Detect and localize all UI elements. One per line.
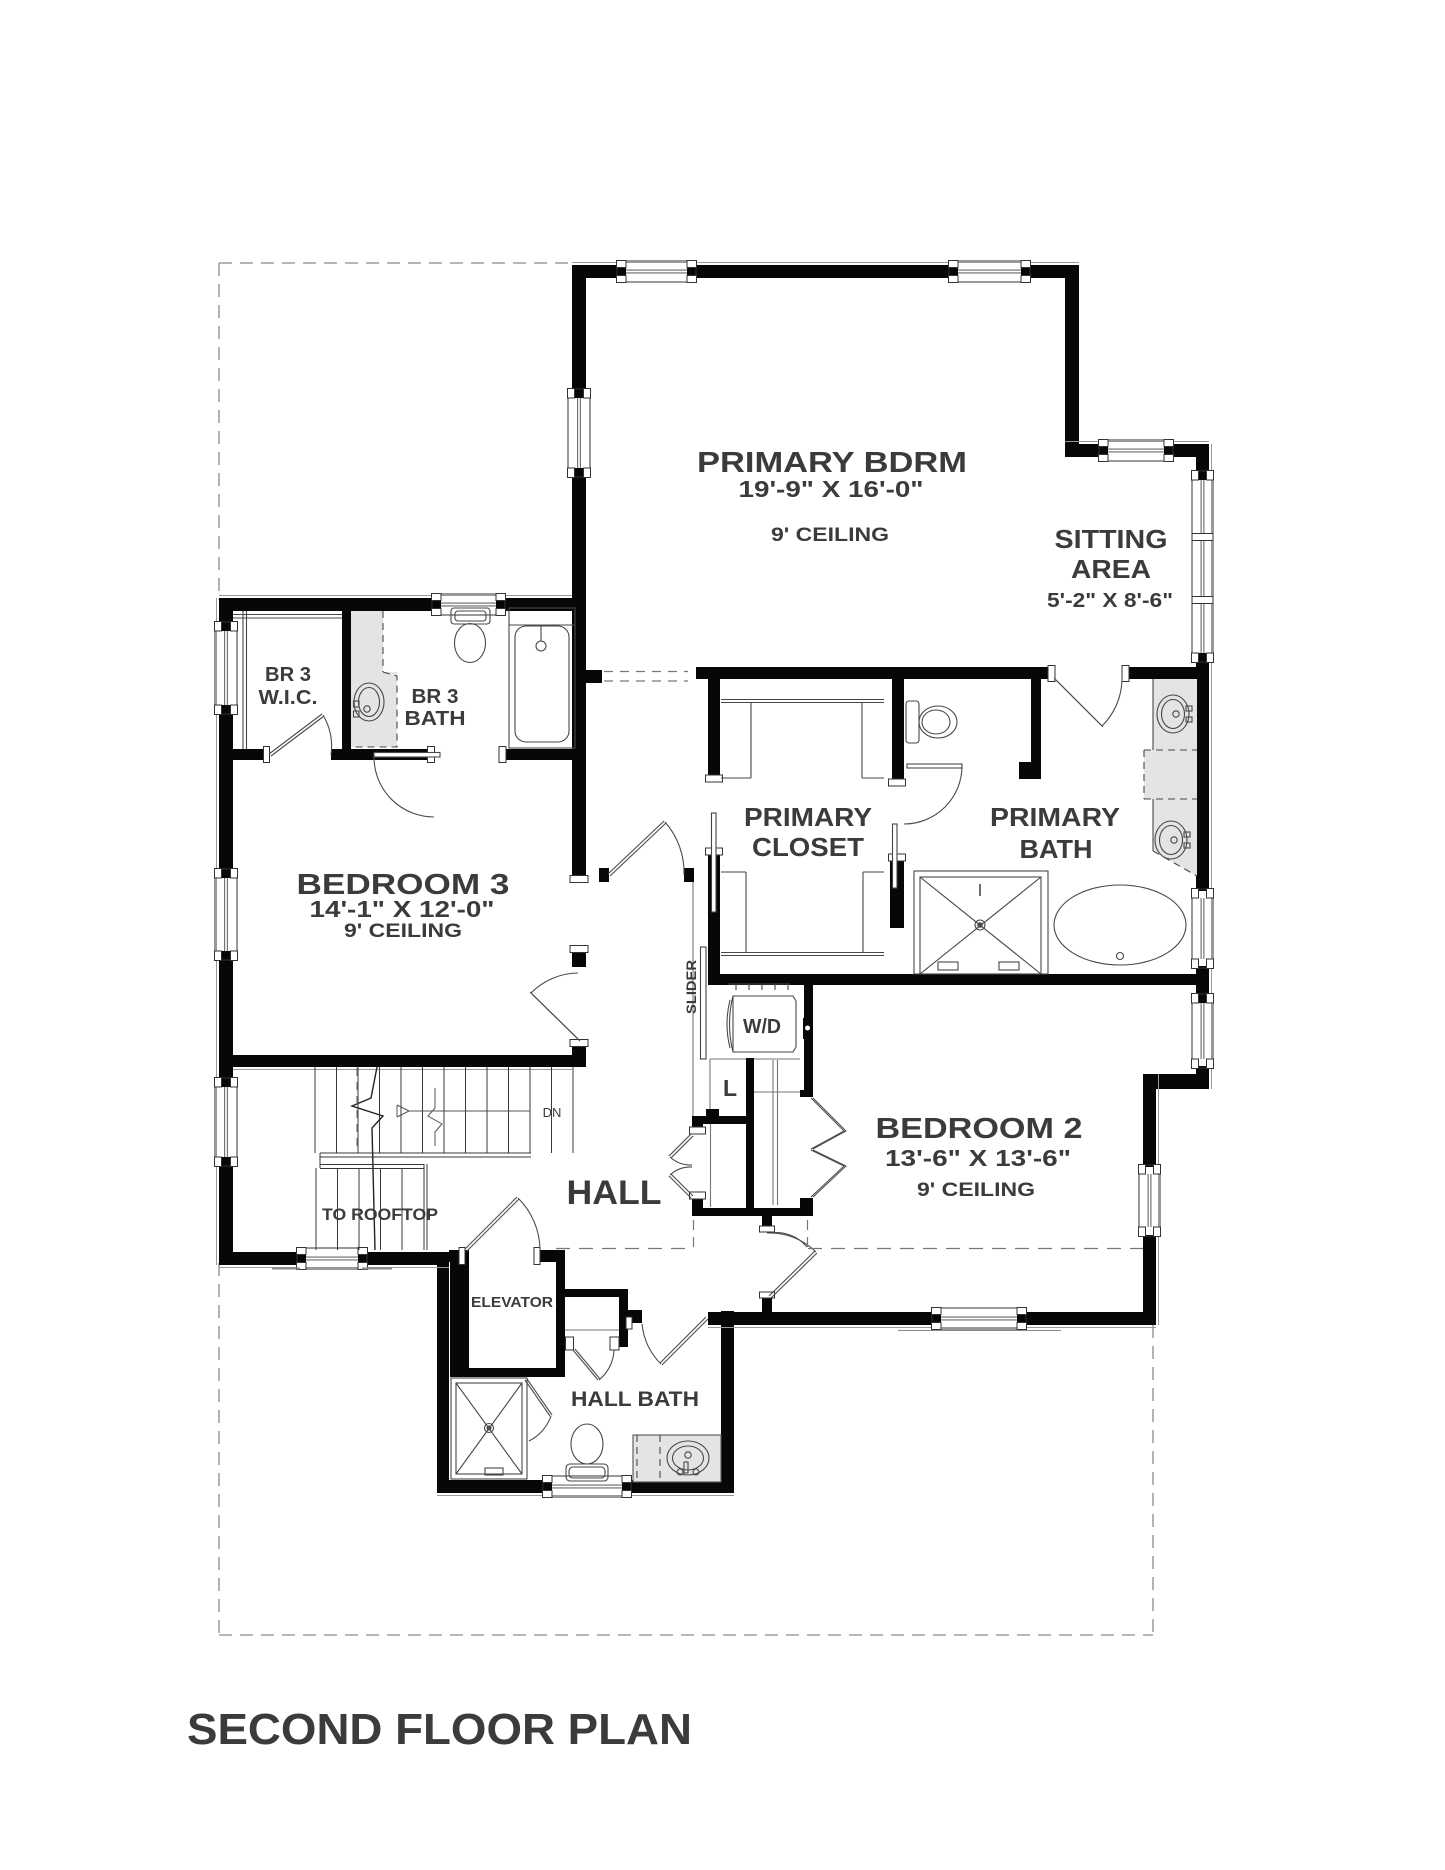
svg-text:9' CEILING: 9' CEILING (917, 1180, 1035, 1201)
svg-text:SITTING: SITTING (1055, 524, 1168, 554)
svg-text:5'-2" X 8'-6": 5'-2" X 8'-6" (1047, 590, 1173, 612)
svg-text:ELEVATOR: ELEVATOR (471, 1294, 553, 1311)
svg-text:PRIMARY: PRIMARY (990, 802, 1120, 832)
svg-text:SLIDER: SLIDER (683, 960, 699, 1014)
svg-text:SECOND FLOOR PLAN: SECOND FLOOR PLAN (187, 1705, 692, 1754)
svg-text:W/D: W/D (743, 1016, 781, 1038)
svg-text:TO ROOFTOP: TO ROOFTOP (322, 1205, 438, 1224)
svg-text:BR 3: BR 3 (265, 664, 311, 686)
svg-text:9' CEILING: 9' CEILING (344, 921, 462, 942)
svg-text:BATH: BATH (1020, 834, 1093, 864)
svg-text:CLOSET: CLOSET (752, 832, 864, 862)
svg-text:14'-1" X 12'-0": 14'-1" X 12'-0" (310, 896, 495, 922)
svg-text:BR 3: BR 3 (412, 686, 459, 708)
svg-text:PRIMARY: PRIMARY (744, 802, 872, 832)
svg-text:HALL: HALL (567, 1174, 662, 1212)
svg-text:W.I.C.: W.I.C. (259, 687, 318, 709)
svg-text:13'-6" X 13'-6": 13'-6" X 13'-6" (885, 1145, 1071, 1171)
svg-text:BATH: BATH (405, 708, 466, 730)
svg-text:9' CEILING: 9' CEILING (771, 525, 889, 546)
svg-text:BEDROOM 2: BEDROOM 2 (876, 1113, 1083, 1145)
svg-text:HALL BATH: HALL BATH (571, 1388, 699, 1411)
svg-text:19'-9" X 16'-0": 19'-9" X 16'-0" (739, 476, 924, 502)
svg-text:L: L (723, 1075, 737, 1101)
svg-text:DN: DN (543, 1105, 562, 1120)
svg-text:AREA: AREA (1071, 554, 1151, 584)
svg-text:PRIMARY BDRM: PRIMARY BDRM (697, 447, 967, 479)
